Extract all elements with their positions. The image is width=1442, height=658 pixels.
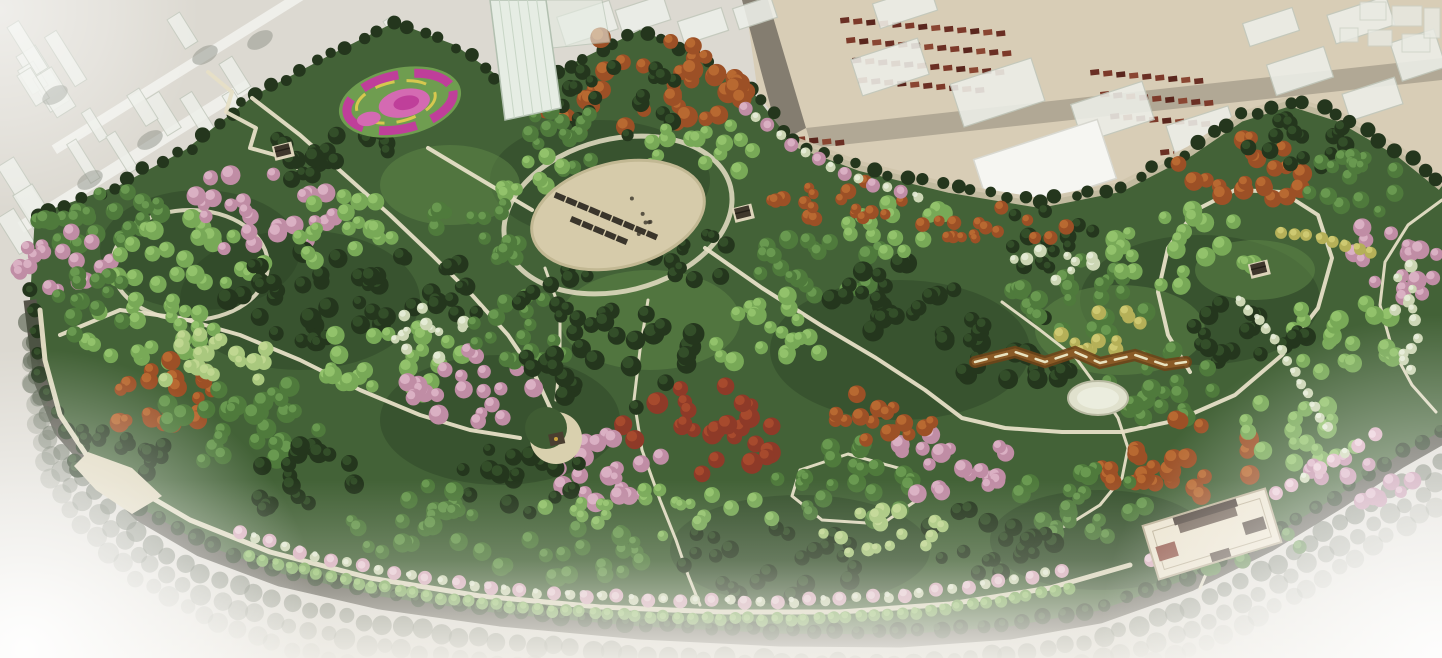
park-masterplan-aerial-rendering bbox=[0, 0, 1442, 658]
aerial-rendering-canvas bbox=[0, 0, 1442, 658]
vignette-fog bbox=[0, 0, 1442, 658]
